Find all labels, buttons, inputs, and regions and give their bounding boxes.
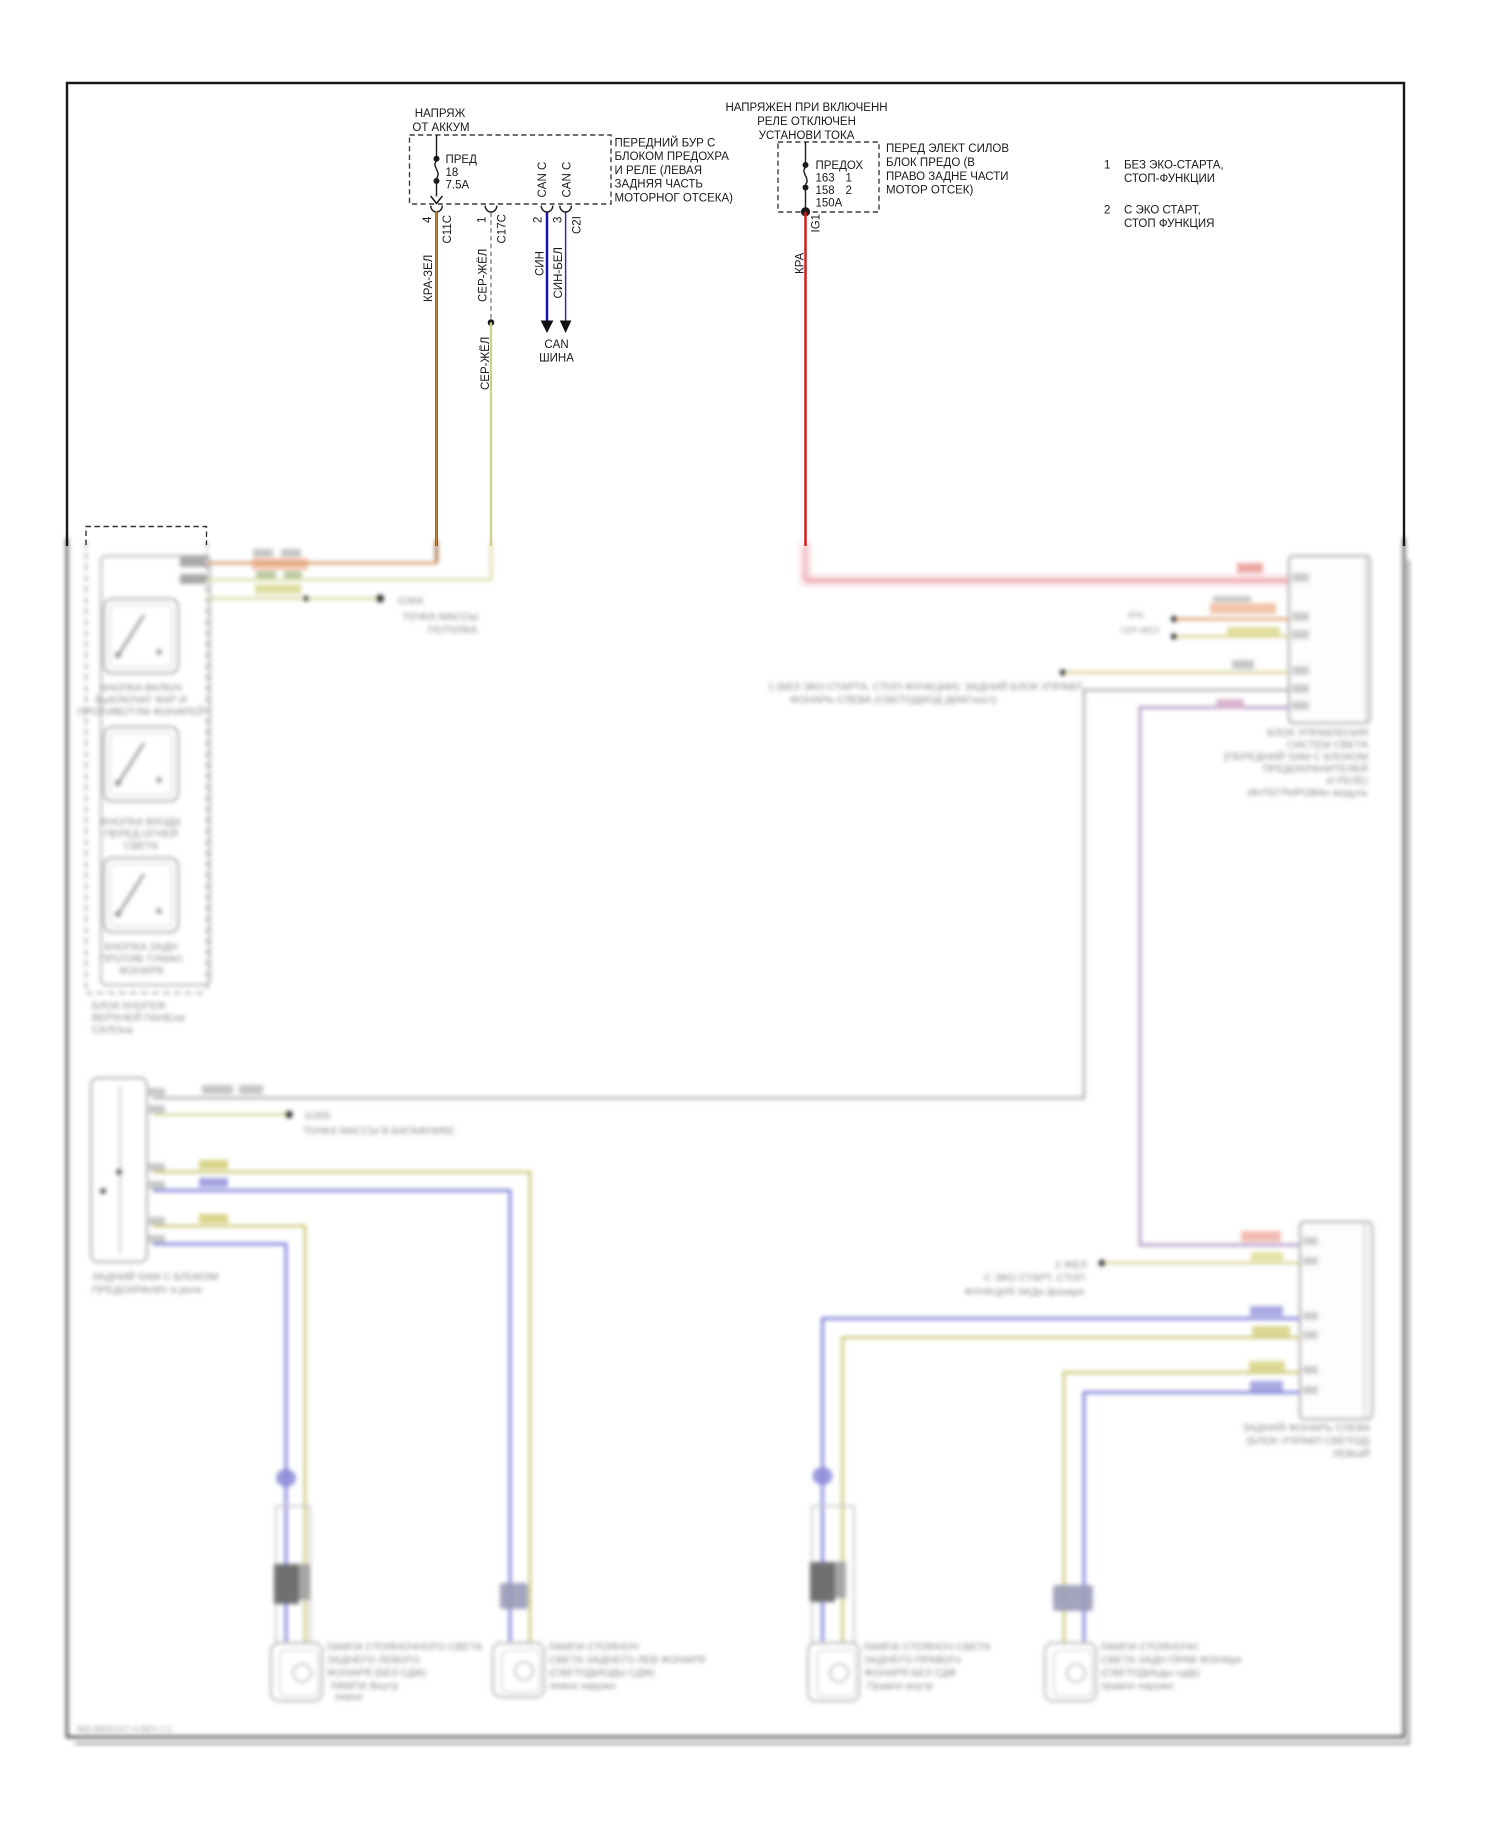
svg-text:ЛАМПА СТОЯНОЧН: ЛАМПА СТОЯНОЧН bbox=[1100, 1642, 1198, 1653]
svg-text:C11C: C11C bbox=[442, 215, 454, 244]
svg-text:ШИНА: ШИНА bbox=[539, 353, 574, 365]
svg-text:ФОНАРЯ БЕЗ СДФ: ФОНАРЯ БЕЗ СДФ bbox=[864, 1668, 956, 1679]
svg-text:ПЕРЕД ЭЛЕКТ СИЛОВ: ПЕРЕД ЭЛЕКТ СИЛОВ bbox=[886, 143, 1009, 155]
svg-text:КРА: КРА bbox=[1128, 610, 1144, 620]
svg-text:ЗАДНЯЯ ЧАСТЬ: ЗАДНЯЯ ЧАСТЬ bbox=[615, 179, 703, 191]
svg-text:4: 4 bbox=[422, 216, 434, 223]
svg-text:КНОПКА ВКЛЮЧ: КНОПКА ВКЛЮЧ bbox=[100, 683, 182, 694]
svg-text:БЛОК УПРАВЛЕНИЯ: БЛОК УПРАВЛЕНИЯ bbox=[1267, 728, 1368, 739]
svg-text:1: 1 bbox=[477, 217, 489, 223]
svg-text:КРА: КРА bbox=[795, 252, 807, 274]
svg-text:ВыКЛЮЧАТ ФАР И: ВыКЛЮЧАТ ФАР И bbox=[95, 695, 187, 706]
svg-text:158: 158 bbox=[816, 185, 835, 197]
svg-text:(СВЕТОДИОДЫ СДФ): (СВЕТОДИОДЫ СДФ) bbox=[549, 1668, 654, 1679]
svg-text:СВЕТА: СВЕТА bbox=[124, 841, 158, 852]
svg-text:ПРЕД: ПРЕД bbox=[446, 154, 478, 166]
svg-text:САЛОна: САЛОна bbox=[92, 1025, 133, 1036]
svg-text:РЕЛЕ ОТКЛЮЧЕН: РЕЛЕ ОТКЛЮЧЕН bbox=[757, 116, 856, 128]
svg-text:ПРЕДОХРАНИТЕЛЕЙ: ПРЕДОХРАНИТЕЛЕЙ bbox=[1262, 762, 1368, 775]
svg-text:ПРЕДОХРАНИт и реле: ПРЕДОХРАНИт и реле bbox=[92, 1285, 203, 1296]
svg-text:правое наружн: правое наружн bbox=[1101, 1681, 1173, 1692]
svg-text:WD-8829-017-A REV 2.1: WD-8829-017-A REV 2.1 bbox=[77, 1724, 172, 1734]
svg-text:ЗАДНЕГО ПРАВОГо: ЗАДНЕГО ПРАВОГо bbox=[864, 1655, 961, 1666]
svg-text:3: 3 bbox=[553, 217, 565, 223]
svg-text:НАПРЯЖ: НАПРЯЖ bbox=[415, 108, 466, 120]
svg-text:Правое внутр: Правое внутр bbox=[867, 1681, 933, 1692]
svg-text:ПЕРЕДНИЙ БУР С: ПЕРЕДНИЙ БУР С bbox=[615, 137, 716, 150]
svg-text:СТОП ФУНКЦИЯ: СТОП ФУНКЦИЯ bbox=[1124, 218, 1214, 230]
svg-text:ПРОТИВОТУМ ФОНАРЕЙ: ПРОТИВОТУМ ФОНАРЕЙ bbox=[78, 705, 205, 718]
svg-text:ПРЕДОХ: ПРЕДОХ bbox=[816, 160, 864, 172]
svg-text:(СВЕТОДИоды сдф): (СВЕТОДИоды сдф) bbox=[1101, 1667, 1199, 1679]
svg-text:СВЕТА ЗАДНЕГО ЛЕВ ФОНАРЯ: СВЕТА ЗАДНЕГО ЛЕВ ФОНАРЯ bbox=[549, 1655, 705, 1666]
svg-text:ПРОТИВ ТУМАН: ПРОТИВ ТУМАН bbox=[100, 954, 182, 965]
svg-text:МОТОРНОГ ОТСЕКА): МОТОРНОГ ОТСЕКА) bbox=[615, 192, 734, 204]
svg-text:СИСТЕМ СВЕТА: СИСТЕМ СВЕТА bbox=[1287, 740, 1368, 751]
svg-text:ТОЧКА МАССЫ: ТОЧКА МАССЫ bbox=[402, 612, 478, 623]
svg-text:(ПЕРЕДНИЙ SAM С БЛОКОМ: (ПЕРЕДНИЙ SAM С БЛОКОМ bbox=[1224, 750, 1368, 763]
svg-text:ФУНКЦИЯ ЗАДн фонаря: ФУНКЦИЯ ЗАДн фонаря bbox=[965, 1286, 1084, 1298]
svg-text:G304: G304 bbox=[398, 596, 424, 607]
svg-text:2: 2 bbox=[533, 217, 545, 223]
svg-text:БЛОКОМ ПРЕДОХРА: БЛОКОМ ПРЕДОХРА bbox=[615, 151, 730, 163]
svg-text:ЛАМПА СТОЯНОЧ: ЛАМПА СТОЯНОЧ bbox=[548, 1642, 638, 1653]
svg-text:1 (БЕЗ ЭКО-СТАРТА, СТОП-ФУНКЦИ: 1 (БЕЗ ЭКО-СТАРТА, СТОП-ФУНКЦИИ): ЗАДНИЙ… bbox=[768, 680, 1082, 693]
svg-text:ЛАМПА СТОЯНОЧНОГО СВЕТА: ЛАМПА СТОЯНОЧНОГО СВЕТА bbox=[326, 1642, 482, 1653]
svg-text:C17C: C17C bbox=[497, 214, 509, 243]
svg-text:СИН: СИН bbox=[535, 251, 547, 276]
svg-text:7.5A: 7.5A bbox=[446, 180, 470, 192]
svg-text:СЕР-ЖЁЛ: СЕР-ЖЁЛ bbox=[478, 249, 490, 302]
svg-text:150A: 150A bbox=[816, 198, 843, 210]
svg-text:(БЛОК УПРАВЛ СВЕТОД): (БЛОК УПРАВЛ СВЕТОД) bbox=[1247, 1436, 1370, 1447]
svg-text:КНОПКА ВХОДА: КНОПКА ВХОДА bbox=[101, 817, 181, 828]
svg-text:СИН-БЕЛ: СИН-БЕЛ bbox=[553, 247, 565, 298]
svg-text:СЕР-ЖЁЛ: СЕР-ЖЁЛ bbox=[480, 337, 492, 390]
svg-text:МОТОР ОТСЕК): МОТОР ОТСЕК) bbox=[886, 185, 973, 197]
svg-text:CAN C: CAN C bbox=[562, 162, 574, 198]
svg-text:ФОНАРЯ (БЕЗ СДФ): ФОНАРЯ (БЕЗ СДФ) bbox=[327, 1668, 426, 1679]
svg-text:163: 163 bbox=[816, 173, 835, 185]
svg-text:2 ЖЕЛ: 2 ЖЕЛ bbox=[1055, 1260, 1087, 1271]
svg-text:CAN C: CAN C bbox=[537, 162, 549, 198]
svg-text:НАПРЯЖЕН ПРИ ВКЛЮЧЕНН: НАПРЯЖЕН ПРИ ВКЛЮЧЕНН bbox=[725, 102, 887, 114]
svg-text:БЛОК ПРЕДО (В: БЛОК ПРЕДО (В bbox=[886, 157, 975, 169]
svg-text:И РЕЛЕ (ЛЕВАЯ: И РЕЛЕ (ЛЕВАЯ bbox=[615, 165, 703, 177]
svg-text:CAN: CAN bbox=[544, 339, 568, 351]
svg-text:ПРАВО ЗАДНЕ ЧАСТИ: ПРАВО ЗАДНЕ ЧАСТИ bbox=[886, 171, 1009, 183]
svg-text:ЗАДНИЙ ФОНАРЬ СЛЕВА: ЗАДНИЙ ФОНАРЬ СЛЕВА bbox=[1243, 1421, 1370, 1434]
svg-text:СЕР-ЖЕЛ: СЕР-ЖЕЛ bbox=[1120, 625, 1159, 635]
svg-text:18: 18 bbox=[446, 167, 459, 179]
svg-text:левое: левое bbox=[334, 1692, 363, 1703]
svg-text:2: 2 bbox=[846, 185, 852, 197]
svg-text:ФОНАРЬ СЛЕВА (СВЕТОДИОД ДИАГно: ФОНАРЬ СЛЕВА (СВЕТОДИОД ДИАГност) bbox=[790, 695, 997, 706]
svg-text:IG1: IG1 bbox=[811, 214, 823, 233]
svg-text:КНОПКА ЗАДН: КНОПКА ЗАДН bbox=[104, 942, 177, 953]
svg-text:КРА-ЗЕЛ: КРА-ЗЕЛ bbox=[423, 255, 435, 302]
svg-text:C2I: C2I bbox=[572, 216, 584, 234]
svg-text:И РЕЛЕ): И РЕЛЕ) bbox=[1327, 776, 1368, 787]
svg-text:ТОЧКА МАССЫ В БАГАЖНИКЕ: ТОЧКА МАССЫ В БАГАЖНИКЕ bbox=[303, 1126, 455, 1137]
svg-text:УСТАНОВИ ТОКА: УСТАНОВИ ТОКА bbox=[759, 130, 855, 142]
svg-text:1: 1 bbox=[1104, 159, 1110, 171]
svg-text:1: 1 bbox=[846, 173, 852, 185]
svg-text:ПЕРЕД ОГНЕЙ: ПЕРЕД ОГНЕЙ bbox=[104, 827, 178, 840]
svg-text:ИНТЕГРИРОВАн модуль: ИНТЕГРИРОВАн модуль bbox=[1248, 788, 1368, 799]
svg-text:СТОП-ФУНКЦИИ: СТОП-ФУНКЦИИ bbox=[1124, 173, 1215, 185]
svg-text:ФОНАРЯ: ФОНАРЯ bbox=[119, 966, 164, 977]
svg-text:БЛОК КНОПОК: БЛОК КНОПОК bbox=[92, 1001, 166, 1012]
svg-text:2: 2 bbox=[1104, 205, 1110, 217]
svg-text:ЛЕВЫЙ: ЛЕВЫЙ bbox=[1333, 1447, 1370, 1460]
svg-text:ВЕРХНЕЙ ПАНЕли: ВЕРХНЕЙ ПАНЕли bbox=[92, 1011, 185, 1024]
svg-text:ЗАДНИЙ SAM С БЛОКОМ: ЗАДНИЙ SAM С БЛОКОМ bbox=[92, 1270, 218, 1283]
svg-text:ОТ АККУМ: ОТ АККУМ bbox=[412, 122, 469, 134]
svg-text:СВЕТА ЗАДН ПРАВ ФОНАря: СВЕТА ЗАДН ПРАВ ФОНАря bbox=[1101, 1655, 1241, 1666]
svg-text:С ЭКО СТАРТ,: С ЭКО СТАРТ, bbox=[1124, 205, 1201, 217]
svg-text:G305: G305 bbox=[305, 1111, 331, 1122]
svg-text:ЛАМПА Внутр: ЛАМПА Внутр bbox=[330, 1681, 398, 1692]
svg-text:БЕЗ ЭКО-СТАРТА,: БЕЗ ЭКО-СТАРТА, bbox=[1124, 159, 1224, 171]
svg-text:ЛАМПА СТОЯНОЧ СВЕТА: ЛАМПА СТОЯНОЧ СВЕТА bbox=[863, 1642, 991, 1653]
svg-text:С ЭКО СТАРТ, СТОП: С ЭКО СТАРТ, СТОП bbox=[984, 1273, 1085, 1284]
svg-text:левое наружн: левое наружн bbox=[549, 1681, 616, 1692]
svg-text:ЗАДНЕГО ЛЕВОГО: ЗАДНЕГО ЛЕВОГО bbox=[327, 1655, 420, 1666]
svg-text:ПОТОЛКА: ПОТОЛКА bbox=[428, 625, 477, 636]
